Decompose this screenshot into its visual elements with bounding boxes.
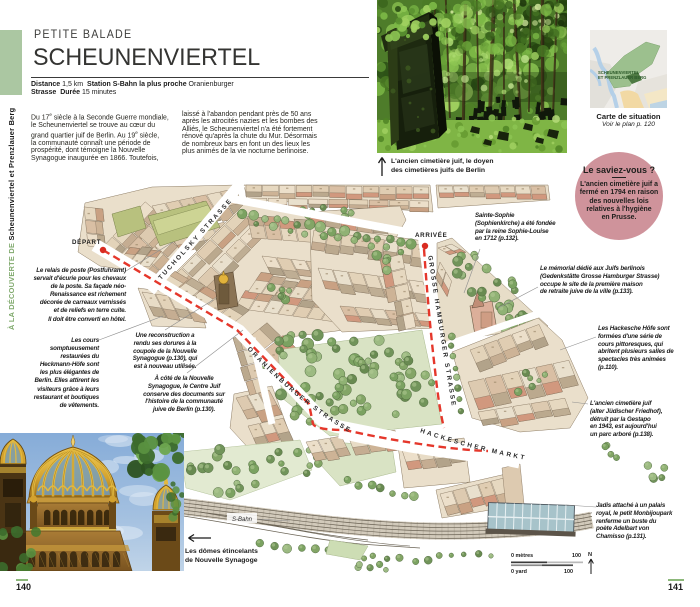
svg-text:S-Bahn: S-Bahn <box>232 517 253 523</box>
svg-text:0 yard: 0 yard <box>511 569 527 575</box>
svg-text:À LA DÉCOUVERTE DE Scheunenvie: À LA DÉCOUVERTE DE Scheunenviertel et Pr… <box>7 107 16 330</box>
svg-text:100: 100 <box>564 569 573 575</box>
svg-text:N: N <box>588 552 592 558</box>
svg-text:100: 100 <box>572 553 581 559</box>
svg-text:0 mètres: 0 mètres <box>511 553 533 559</box>
